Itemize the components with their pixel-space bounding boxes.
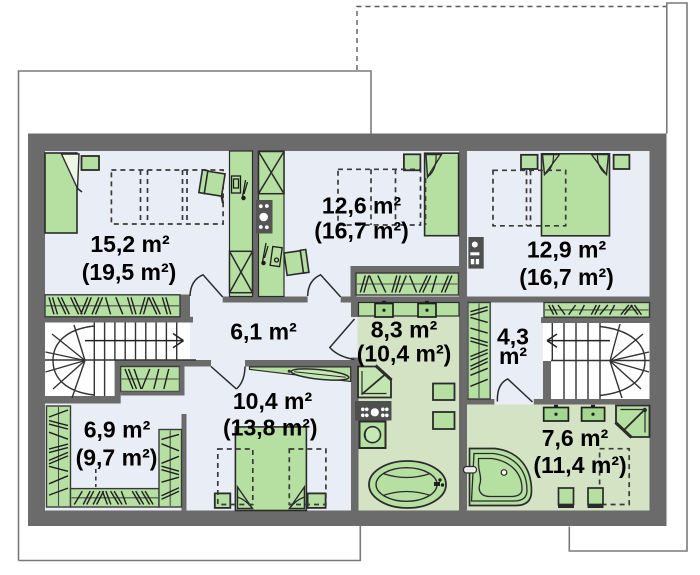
svg-text:(11,4 m²): (11,4 m²) bbox=[533, 452, 626, 478]
svg-text:10,4 m²: 10,4 m² bbox=[233, 388, 313, 414]
svg-text:12,6 m²: 12,6 m² bbox=[322, 193, 402, 219]
svg-text:12,9 m²: 12,9 m² bbox=[527, 237, 607, 263]
svg-text:6,9 m²: 6,9 m² bbox=[84, 417, 151, 443]
svg-text:15,2 m²: 15,2 m² bbox=[90, 231, 170, 257]
svg-text:7,6 m²: 7,6 m² bbox=[542, 425, 609, 451]
svg-text:(13,8 m²): (13,8 m²) bbox=[223, 415, 318, 441]
svg-text:(16,7 m²): (16,7 m²) bbox=[314, 218, 409, 244]
svg-text:(16,7 m²): (16,7 m²) bbox=[519, 264, 614, 290]
svg-text:(9,7 m²): (9,7 m²) bbox=[76, 445, 158, 471]
svg-text:8,3 m²: 8,3 m² bbox=[371, 317, 438, 343]
svg-text:(19,5 m²): (19,5 m²) bbox=[82, 259, 177, 285]
svg-text:6,1 m²: 6,1 m² bbox=[230, 319, 297, 345]
svg-text:(10,4 m²): (10,4 m²) bbox=[357, 341, 452, 367]
svg-text:m²: m² bbox=[499, 343, 527, 369]
